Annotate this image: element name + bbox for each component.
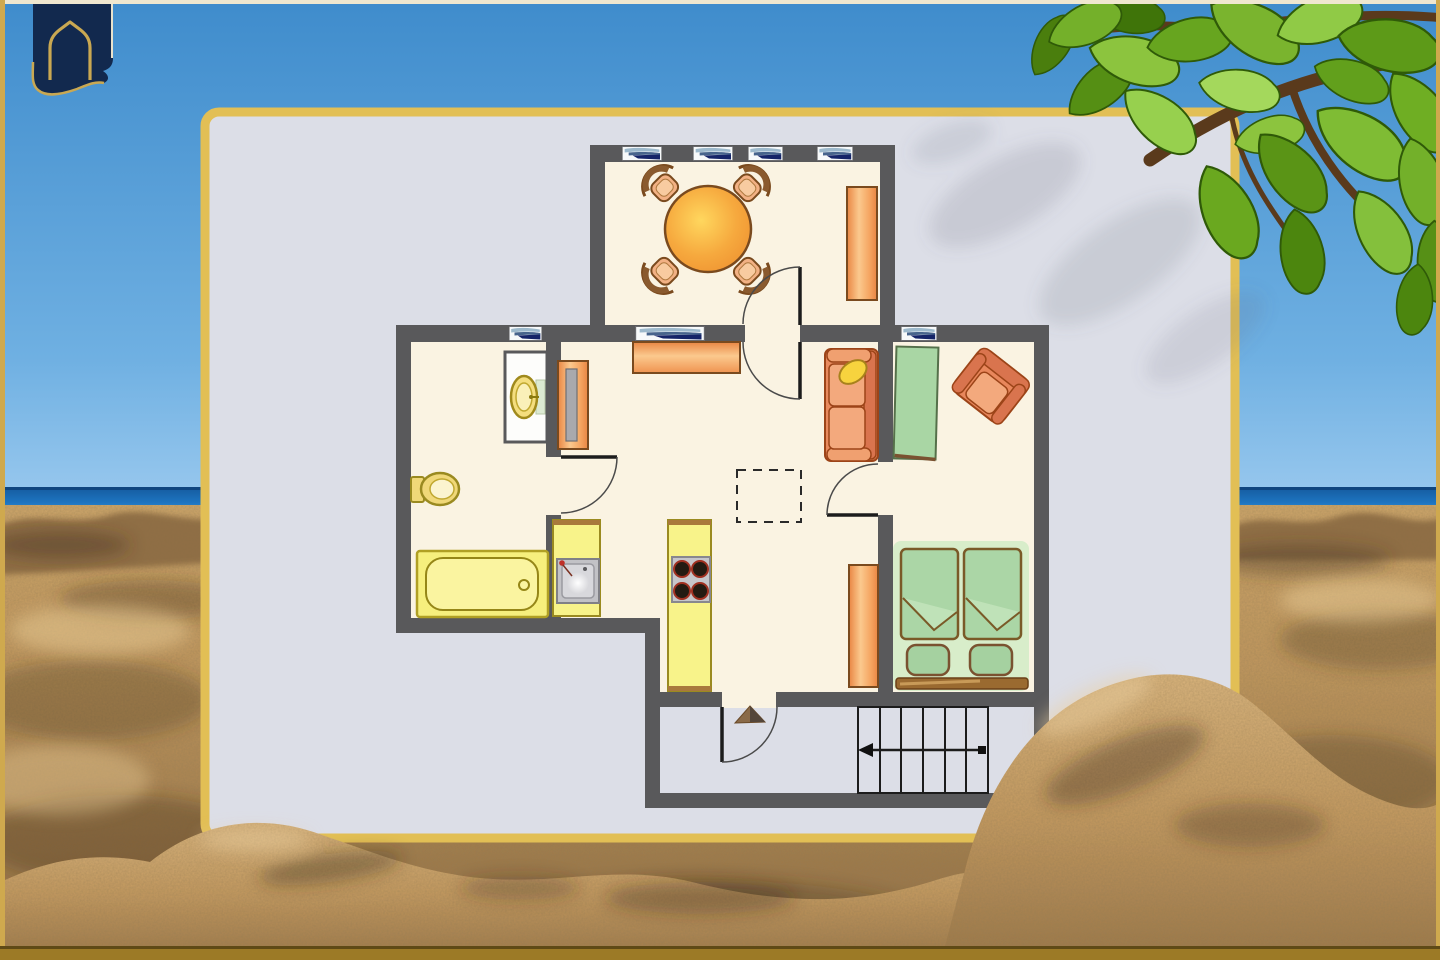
hall-sideboard (633, 342, 740, 373)
green-rug (894, 346, 939, 459)
frame-bottom-line (0, 946, 1440, 949)
beach-floorplan-composition (0, 0, 1440, 960)
frame-right (1436, 0, 1440, 960)
pillow (970, 645, 1012, 675)
toilet (411, 473, 459, 505)
mirror (566, 369, 577, 441)
wall (396, 325, 411, 633)
window-icon (748, 146, 783, 161)
window-icon (622, 146, 662, 161)
sofa (825, 349, 878, 461)
door-opening (546, 457, 561, 515)
frame-left (0, 0, 5, 960)
wall (880, 145, 895, 342)
stair-arrow-end (978, 746, 986, 754)
scene-svg (0, 0, 1440, 960)
washbasin (505, 352, 547, 442)
pillow (907, 645, 949, 675)
bathtub (417, 551, 548, 617)
frame-bottom (0, 949, 1440, 960)
window-icon (509, 326, 542, 341)
faucet (559, 560, 565, 566)
frame-top (0, 0, 1440, 4)
wall (396, 325, 1034, 342)
wall (660, 692, 1034, 707)
round-dining-table (665, 186, 751, 272)
window-icon (817, 146, 853, 161)
single-bed (901, 549, 958, 675)
stove-counter (668, 520, 711, 691)
bedroom-wardrobe (849, 565, 878, 687)
door-opening (722, 691, 776, 708)
window-icon (693, 146, 733, 161)
sink-counter (553, 520, 600, 616)
door-opening (745, 324, 800, 343)
dining-sideboard (847, 187, 877, 300)
wall (396, 618, 660, 633)
wall (590, 145, 605, 325)
door-opening (878, 462, 893, 515)
window-icon (635, 326, 705, 341)
window-icon (901, 326, 937, 341)
arched-banner-logo (33, 0, 113, 94)
mirror-wardrobe (558, 361, 588, 449)
single-bed (964, 549, 1021, 675)
wall (645, 618, 660, 808)
logo-banner (33, 0, 113, 94)
wall (878, 342, 893, 692)
